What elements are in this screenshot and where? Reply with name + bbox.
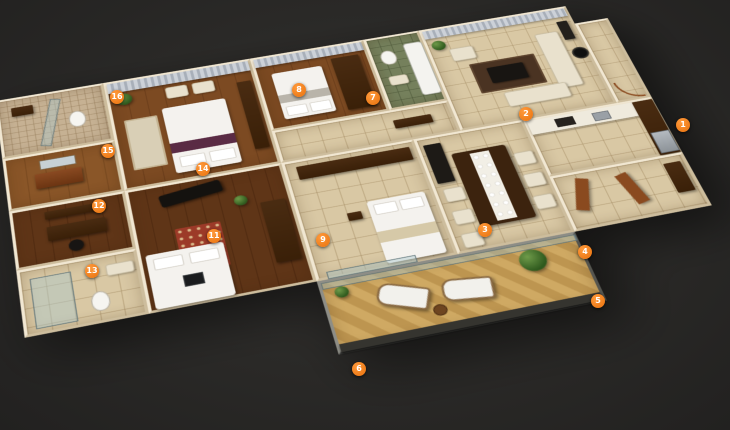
- lounge-chair: [375, 282, 430, 310]
- potted-plant: [115, 92, 134, 106]
- refrigerator: [650, 129, 680, 153]
- lounge-chair: [440, 276, 496, 302]
- area-rug: [124, 115, 168, 170]
- console-table: [393, 114, 434, 129]
- shower-enclosure: [30, 271, 79, 329]
- floor-plan-scene: 123456789111213141516: [0, 0, 730, 430]
- storage-shelf: [663, 161, 696, 193]
- wash-basin: [388, 74, 410, 86]
- open-door: [614, 172, 650, 204]
- side-table: [432, 303, 450, 317]
- dining-chair: [460, 231, 486, 249]
- book-shelf: [44, 202, 103, 220]
- room-marker-6: 6: [352, 362, 366, 376]
- dresser: [35, 167, 84, 190]
- vanity-counter: [11, 105, 34, 117]
- potted-plant: [233, 194, 249, 206]
- laptop: [183, 272, 206, 287]
- dining-chair: [522, 171, 547, 188]
- bed: [366, 191, 447, 263]
- study-desk: [46, 217, 107, 242]
- master-bed: [162, 98, 243, 173]
- toilet: [90, 290, 112, 313]
- armchair: [449, 45, 478, 61]
- kitchen-sink: [591, 110, 612, 121]
- bed: [145, 241, 236, 309]
- dining-chair: [451, 208, 476, 225]
- wash-basin: [105, 260, 135, 276]
- wardrobe: [330, 54, 376, 110]
- room-marker-1: 1: [676, 118, 690, 132]
- side-table: [347, 211, 364, 221]
- toilet: [378, 50, 399, 66]
- apartment-3d-plan: [0, 1, 730, 416]
- potted-plant: [430, 40, 447, 51]
- stove-hob: [554, 116, 577, 127]
- armchair: [165, 84, 190, 99]
- armchair: [191, 80, 216, 95]
- open-door: [575, 178, 590, 210]
- shower-glass-panel: [41, 99, 61, 146]
- entry-door-swing: [613, 79, 646, 100]
- crockery-unit: [423, 143, 456, 184]
- dining-chair: [532, 193, 558, 210]
- dining-chair: [513, 150, 538, 166]
- dining-chair: [442, 186, 467, 203]
- potted-plant: [333, 285, 350, 298]
- tv-chaise: [158, 179, 224, 208]
- table-runner-plates: [469, 150, 517, 220]
- bed: [271, 66, 337, 120]
- toilet: [68, 110, 87, 128]
- desk-chair: [68, 238, 85, 252]
